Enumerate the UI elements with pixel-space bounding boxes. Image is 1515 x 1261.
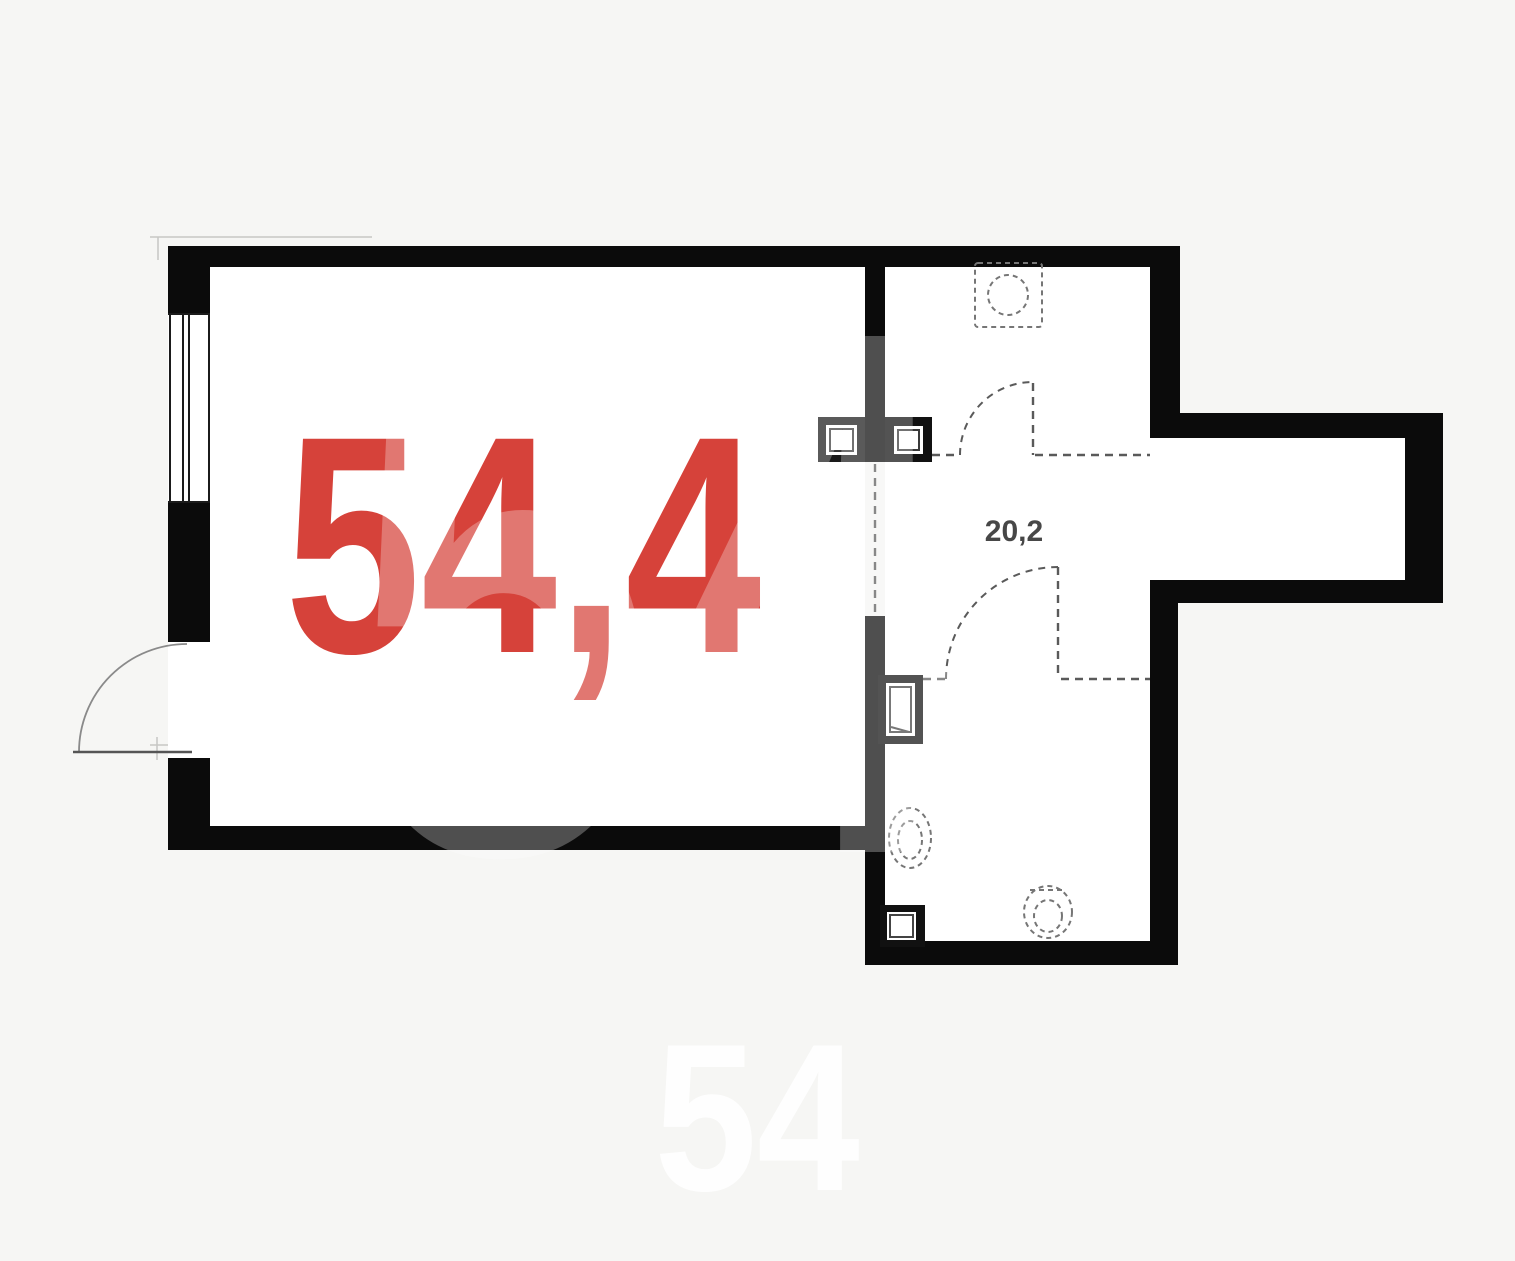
wall-wing-bottom (1150, 580, 1443, 603)
wall-wing-top (1150, 413, 1443, 438)
wall-wing-right (1405, 413, 1443, 603)
wing-corridor-floor (1150, 438, 1405, 580)
watermark-center: 54 (349, 173, 970, 1011)
wall-top-left-block (168, 246, 210, 313)
wall-right-upper (1150, 246, 1180, 438)
floorplan-drawing: 54,4 20,2 54 54 (0, 0, 1515, 1261)
secondary-room-area-label: 20,2 (985, 515, 1043, 548)
wall-right-lower (1150, 603, 1178, 965)
wall-left-mid (168, 503, 210, 642)
watermark-bottom: 54 (654, 1000, 860, 1235)
entry-door-opening (168, 642, 210, 758)
floorplan-canvas: 54,4 20,2 54 54 (0, 0, 1515, 1261)
